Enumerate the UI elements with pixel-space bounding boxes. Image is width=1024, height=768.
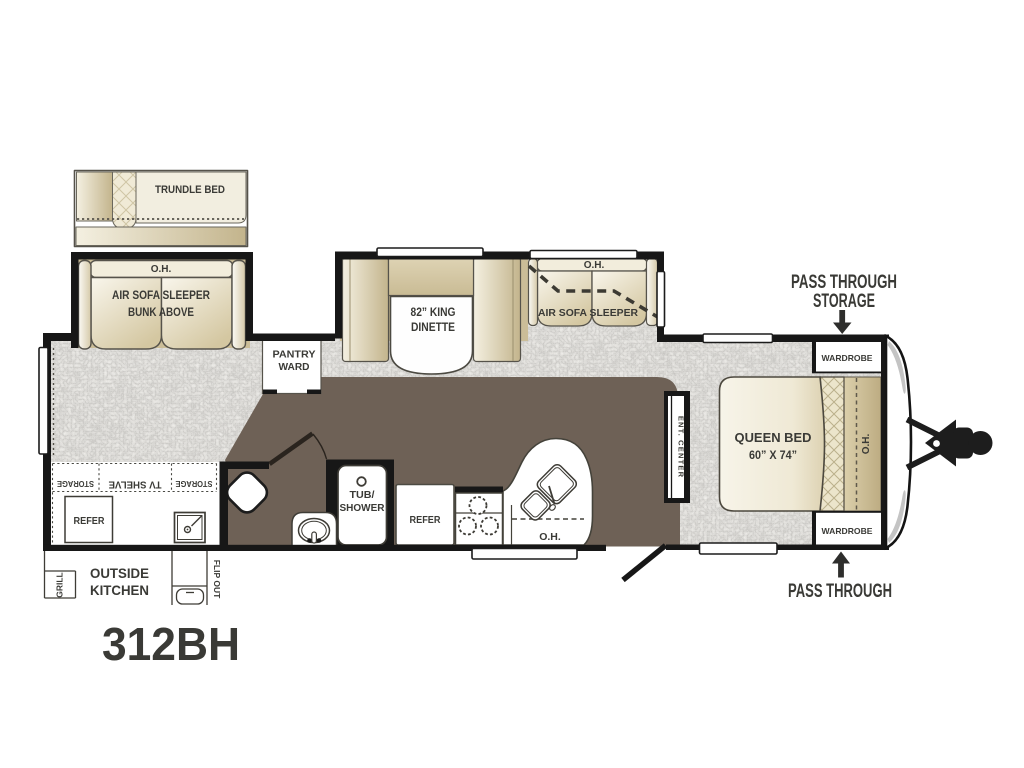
svg-text:FLIP OUT: FLIP OUT	[212, 560, 222, 599]
svg-text:OUTSIDE: OUTSIDE	[90, 565, 149, 581]
svg-text:QUEEN BED: QUEEN BED	[735, 430, 812, 445]
svg-text:60” X 74”: 60” X 74”	[749, 448, 797, 462]
svg-text:AIR SOFA SLEEPER: AIR SOFA SLEEPER	[112, 290, 211, 302]
svg-text:WARDROBE: WARDROBE	[822, 526, 873, 536]
svg-text:KITCHEN: KITCHEN	[90, 582, 149, 598]
svg-text:GRILL: GRILL	[55, 572, 65, 598]
svg-text:82” KING: 82” KING	[411, 307, 456, 319]
svg-text:PASS THROUGH: PASS THROUGH	[788, 581, 892, 602]
svg-text:O.H.: O.H.	[861, 434, 872, 455]
svg-text:WARDROBE: WARDROBE	[822, 353, 873, 363]
svg-text:O.H.: O.H.	[151, 264, 172, 275]
svg-text:ENT. CENTER: ENT. CENTER	[677, 416, 686, 478]
svg-text:PASS THROUGH: PASS THROUGH	[791, 272, 897, 293]
svg-text:BUNK ABOVE: BUNK ABOVE	[128, 307, 194, 319]
svg-text:TUB/: TUB/	[350, 489, 375, 501]
svg-text:O.H.: O.H.	[584, 260, 605, 271]
svg-text:STORAGE: STORAGE	[813, 291, 875, 312]
svg-text:REFER: REFER	[74, 515, 105, 527]
svg-text:DINETTE: DINETTE	[411, 322, 455, 334]
svg-text:WARD: WARD	[279, 361, 310, 373]
svg-text:TRUNDLE BED: TRUNDLE BED	[155, 184, 225, 196]
svg-text:O.H.: O.H.	[539, 531, 561, 543]
svg-text:STORAGE: STORAGE	[175, 479, 213, 488]
svg-text:PANTRY: PANTRY	[273, 349, 316, 361]
svg-text:SHOWER: SHOWER	[340, 502, 385, 514]
svg-text:TV SHELVE: TV SHELVE	[108, 479, 161, 490]
svg-text:AIR SOFA SLEEPER: AIR SOFA SLEEPER	[538, 307, 638, 319]
svg-text:REFER: REFER	[410, 514, 441, 526]
svg-text:312BH: 312BH	[102, 618, 240, 670]
svg-text:STORAGE: STORAGE	[56, 479, 94, 488]
